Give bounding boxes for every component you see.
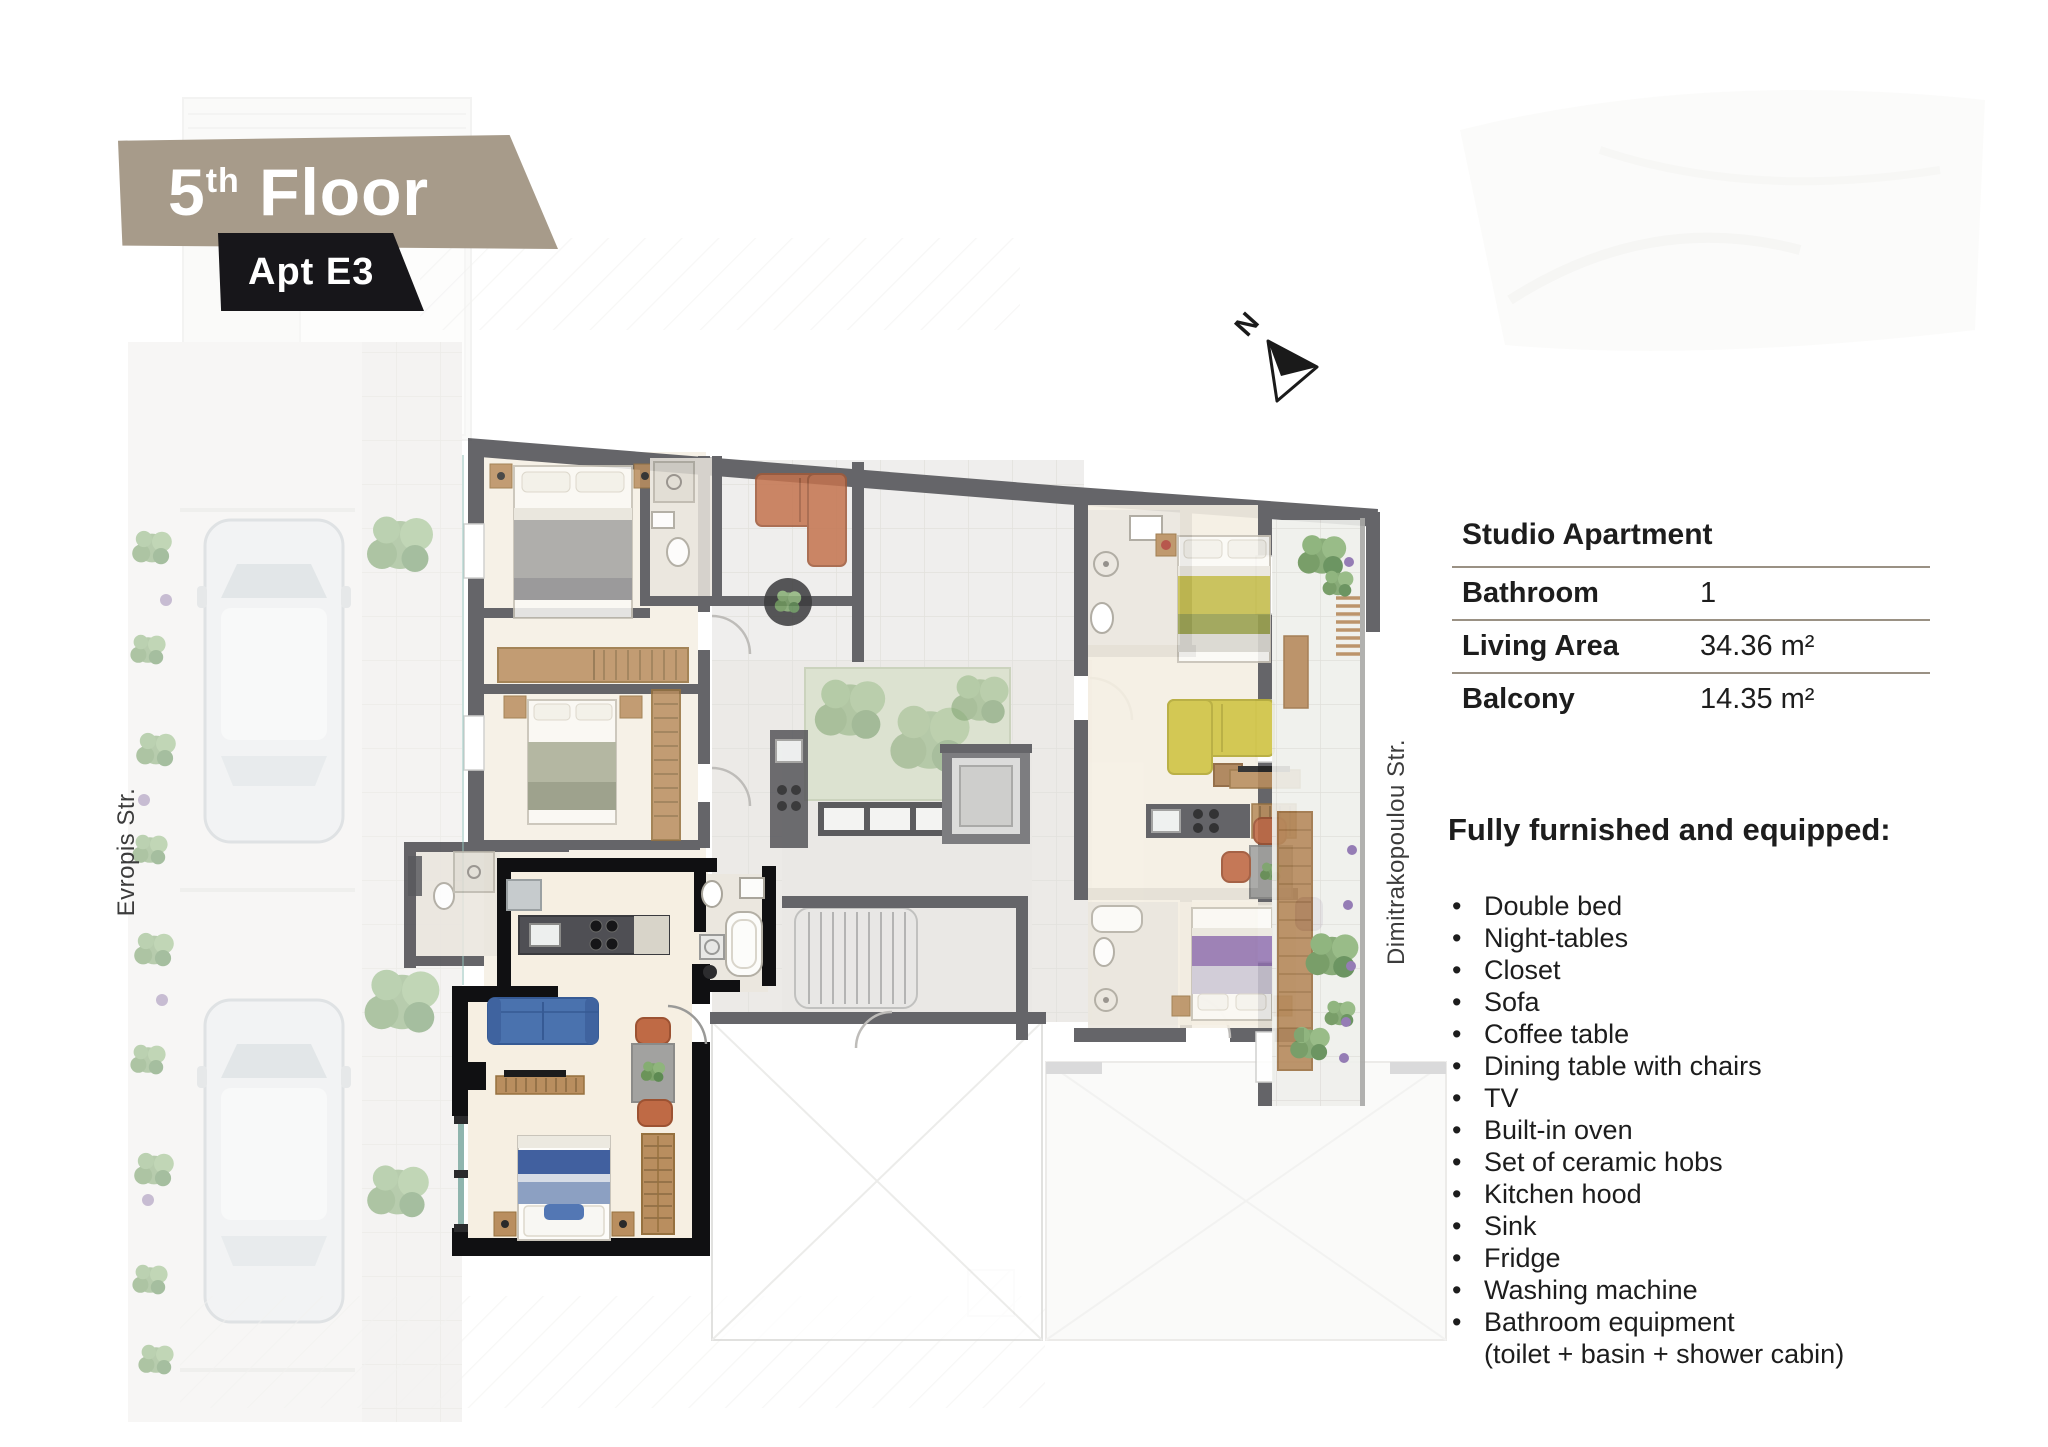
list-item: •Set of ceramic hobs <box>1448 1146 1968 1178</box>
bathroom-2 <box>408 852 500 956</box>
bathroom-top-right <box>1088 510 1180 645</box>
list-item: •Closet <box>1448 954 1968 986</box>
bathroom-bottom-right <box>1088 902 1178 1028</box>
north-compass: N <box>1228 306 1317 401</box>
street-label-right: Dimitrakopoulou Str. <box>1383 717 1411 987</box>
bullet-icon: • <box>1452 986 1461 1018</box>
row-label: Living Area <box>1452 630 1700 663</box>
e3-wardrobe <box>642 1134 674 1234</box>
bullet-icon: • <box>1452 1178 1461 1210</box>
row-label: Balcony <box>1452 683 1700 716</box>
row-value: 14.35 m² <box>1700 683 1814 716</box>
balcony <box>1272 518 1365 1106</box>
street-label-left: Evropis Str. <box>113 717 141 987</box>
list-item: •Coffee table <box>1448 1018 1968 1050</box>
list-item: •Double bed <box>1448 890 1968 922</box>
bathroom-1 <box>650 458 712 596</box>
bullet-icon: • <box>1452 1050 1461 1082</box>
e3-sofa <box>488 998 598 1044</box>
row-label: Bathroom <box>1452 577 1700 610</box>
row-value: 34.36 m² <box>1700 630 1814 663</box>
floor-title: 5th Floor <box>168 159 429 225</box>
apartment-banner: Apt E3 <box>218 233 424 311</box>
stairs <box>795 908 917 1008</box>
bullet-icon: • <box>1452 922 1461 954</box>
washing-machine <box>700 935 724 959</box>
features-heading: Fully furnished and equipped: <box>1448 812 1968 848</box>
bullet-icon: • <box>1452 1210 1461 1242</box>
details-title: Studio Apartment <box>1452 518 1930 566</box>
bed-gray <box>490 464 656 618</box>
list-item: •Washing machine <box>1448 1274 1968 1306</box>
list-item-continuation: (toilet + basin + shower cabin) <box>1448 1338 1968 1370</box>
features-section: Fully furnished and equipped: •Double be… <box>1448 812 1968 1370</box>
north-label: N <box>1228 306 1265 342</box>
bullet-icon: • <box>1452 890 1461 922</box>
bullet-icon: • <box>1452 1082 1461 1114</box>
row-value: 1 <box>1700 577 1716 610</box>
floor-banner: 5th Floor <box>118 135 558 249</box>
table-row: Bathroom 1 <box>1452 566 1930 619</box>
list-item: •Night-tables <box>1448 922 1968 954</box>
floor-plan-page: N 5th Floor Apt E3 Evropis Str. Dimitrak… <box>0 0 2048 1447</box>
bullet-icon: • <box>1452 1114 1461 1146</box>
list-item: •Bathroom equipment <box>1448 1306 1968 1338</box>
list-item: •Dining table with chairs <box>1448 1050 1968 1082</box>
wardrobe-2 <box>652 690 680 840</box>
list-item: •Sofa <box>1448 986 1968 1018</box>
e3-dining <box>632 1018 674 1126</box>
elevator <box>942 748 1030 844</box>
shower-head <box>703 965 717 979</box>
list-item: •Sink <box>1448 1210 1968 1242</box>
list-item: •TV <box>1448 1082 1968 1114</box>
e3-fridge <box>507 880 541 910</box>
details-table: Studio Apartment Bathroom 1 Living Area … <box>1452 518 1930 725</box>
tv <box>504 1070 566 1077</box>
bullet-icon: • <box>1452 1242 1461 1274</box>
bullet-icon: • <box>1452 1018 1461 1050</box>
bullet-icon: • <box>1452 954 1461 986</box>
list-item: •Kitchen hood <box>1448 1178 1968 1210</box>
table-row: Balcony 14.35 m² <box>1452 672 1930 725</box>
bullet-icon: • <box>1452 1274 1461 1306</box>
bullet-icon: • <box>1452 1306 1461 1338</box>
bullet-icon: • <box>1452 1146 1461 1178</box>
table-row: Living Area 34.36 m² <box>1452 619 1930 672</box>
closet-strip <box>498 648 688 682</box>
list-item: •Fridge <box>1448 1242 1968 1274</box>
kitchen-1 <box>770 730 808 848</box>
apartment-label: Apt E3 <box>248 251 374 294</box>
list-item: •Built-in oven <box>1448 1114 1968 1146</box>
balcony-bench <box>1284 636 1308 708</box>
